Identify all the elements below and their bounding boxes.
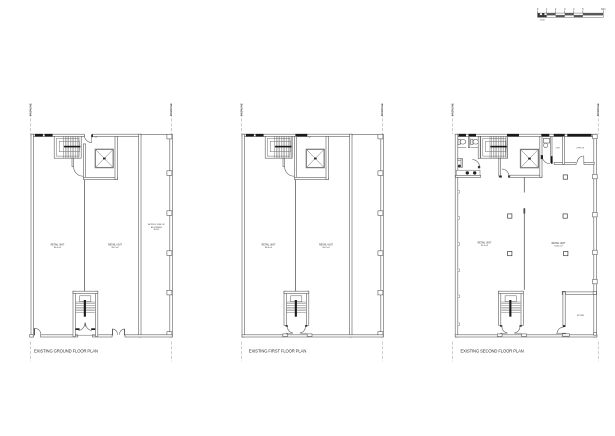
- svg-text:86.4 m²: 86.4 m²: [265, 246, 272, 249]
- svg-text:EXISTING SECOND FLOOR PLAN: EXISTING SECOND FLOOR PLAN: [461, 348, 524, 353]
- svg-text:82.0 m²: 82.0 m²: [481, 244, 488, 247]
- svg-text:98.2 m²: 98.2 m²: [111, 246, 118, 249]
- svg-text:LINE: LINE: [240, 103, 244, 109]
- svg-text:98.2 m²: 98.2 m²: [322, 246, 329, 249]
- svg-text:LINE: LINE: [29, 103, 33, 109]
- svg-text:LINE: LINE: [450, 103, 454, 109]
- svg-text:CPB: CPB: [555, 148, 560, 150]
- svg-text:104.6 m²: 104.6 m²: [554, 245, 563, 248]
- svg-text:LINE: LINE: [380, 103, 384, 109]
- svg-text:BLDG: BLDG: [154, 229, 160, 231]
- svg-text:86.4 m²: 86.4 m²: [54, 246, 61, 249]
- svg-text:EXISTING FIRST FLOOR PLAN: EXISTING FIRST FLOOR PLAN: [249, 348, 307, 353]
- svg-text:EXISTING GROUND FLOOR PLAN: EXISTING GROUND FLOOR PLAN: [34, 348, 98, 353]
- svg-text:OFFICE: OFFICE: [576, 148, 585, 150]
- svg-text:LINE: LINE: [169, 103, 173, 109]
- svg-text:APPROX LINE OF: APPROX LINE OF: [148, 223, 165, 226]
- svg-text:LINE: LINE: [596, 103, 600, 109]
- svg-text:10m: 10m: [601, 9, 606, 11]
- svg-text:STORE: STORE: [577, 315, 585, 317]
- svg-text:1:100: 1:100: [539, 20, 545, 22]
